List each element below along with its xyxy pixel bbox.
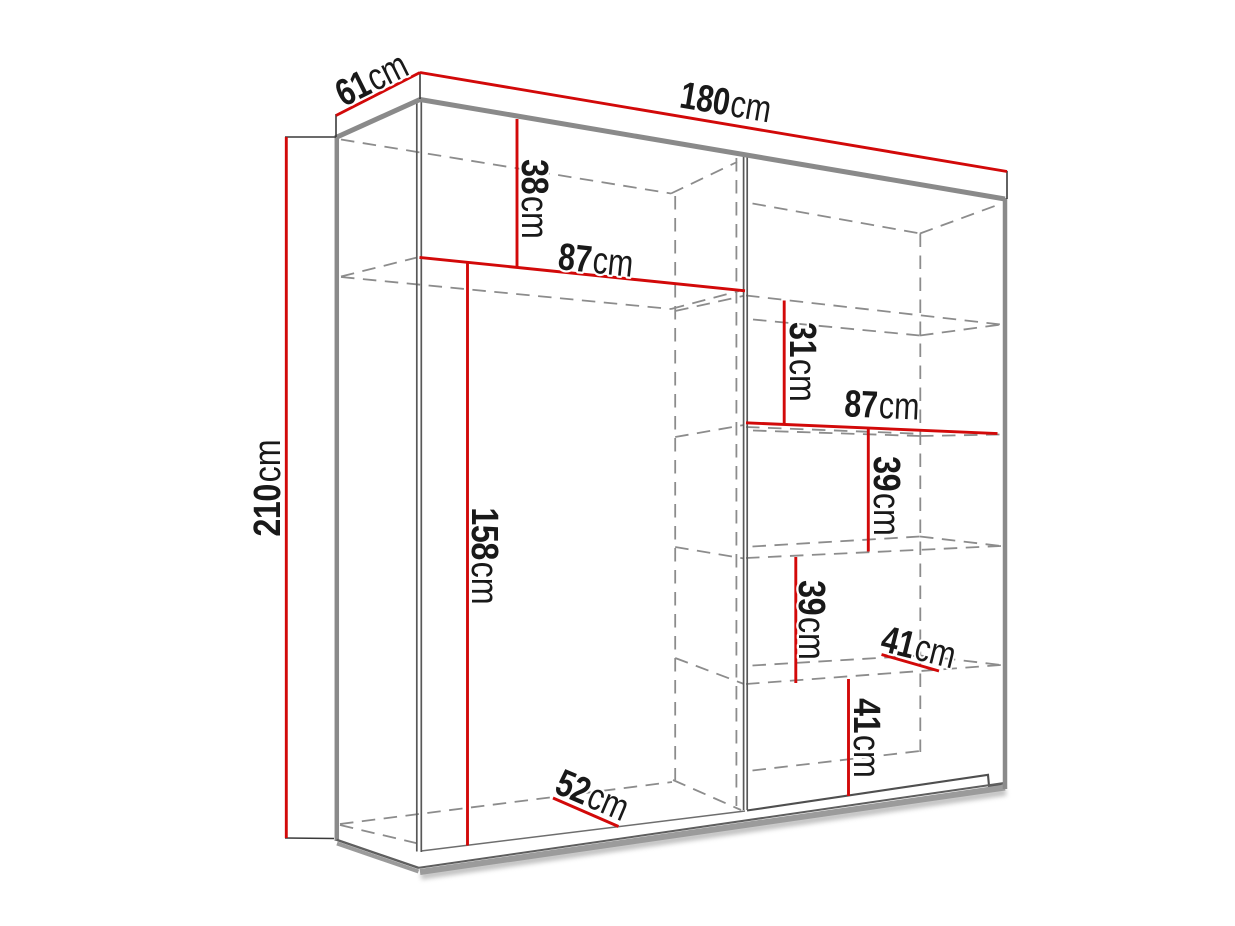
svg-text:158cm: 158cm	[463, 507, 505, 604]
svg-text:41cm: 41cm	[845, 698, 887, 778]
svg-text:39cm: 39cm	[865, 456, 907, 536]
svg-text:38cm: 38cm	[513, 159, 555, 239]
svg-text:87cm: 87cm	[556, 236, 635, 286]
svg-text:61cm: 61cm	[329, 44, 415, 115]
svg-text:31cm: 31cm	[781, 322, 823, 402]
svg-text:52cm: 52cm	[549, 762, 635, 830]
svg-text:41cm: 41cm	[877, 618, 960, 677]
svg-text:180cm: 180cm	[677, 74, 774, 131]
svg-text:87cm: 87cm	[843, 383, 920, 428]
svg-text:39cm: 39cm	[790, 580, 832, 660]
svg-text:210cm: 210cm	[247, 439, 289, 536]
